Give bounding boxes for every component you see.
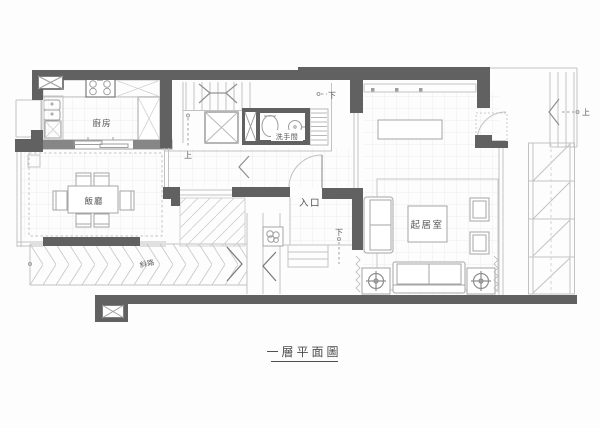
porch-down-marker: 下 [335, 228, 343, 237]
loveseat [364, 197, 393, 253]
entry-steps-outline [288, 245, 328, 267]
dining-south-wall [43, 237, 140, 246]
entry-wall-vertical [352, 199, 363, 250]
fringe-left [356, 256, 360, 292]
lamp-table-right [467, 268, 495, 294]
kitchen-label: 廚房 [92, 118, 111, 129]
entry-wall-horizontal [322, 188, 363, 199]
sofa [393, 262, 465, 293]
ramp-hatch [30, 244, 247, 285]
kitchen-east-wall [160, 80, 172, 148]
hall-floor-grid [168, 148, 352, 187]
elevator-shaft [205, 112, 238, 143]
plan-title: 一層平面圖 [266, 345, 341, 359]
exterior-stairs-right [490, 68, 579, 147]
exterior-up-marker: 上 [582, 108, 590, 117]
south-wall-mid [232, 187, 290, 197]
trellis-structure [528, 143, 575, 294]
title-block: 一層平面圖 [266, 345, 341, 362]
nw-column [38, 76, 63, 89]
south-boundary-wall [95, 295, 577, 304]
side-table-lower [470, 232, 489, 254]
west-pier-notch [31, 130, 43, 139]
stairs-up-marker: 上 [184, 151, 192, 160]
hall-south-pier-step [171, 199, 180, 206]
duct-panel [242, 108, 259, 145]
console-cabinet [378, 120, 442, 139]
hall-south-pier [163, 187, 180, 199]
terrace-threshold-a [475, 135, 492, 142]
understair-shelf [310, 93, 328, 146]
washroom-label: 洗手間 [276, 132, 299, 141]
garden-hatch-bed [180, 198, 245, 246]
west-pier [15, 139, 43, 152]
ramp-area [29, 244, 248, 285]
lamp-table-left [362, 268, 390, 294]
tall-cabinet [138, 97, 160, 140]
side-table-upper [470, 198, 489, 221]
stair-up-datum [187, 114, 190, 117]
trellis-diag-3 [533, 220, 570, 256]
top-wall-east [298, 67, 490, 80]
floor-plan-drawing: 廚房 飯廳 洗手間 入口 起居室 斜路 上 下 下 上 一層平面圖 [0, 0, 600, 428]
planting-bed [180, 198, 245, 246]
stair-chevron-right [199, 84, 210, 103]
plant-icon [263, 227, 283, 246]
terrace-threshold-b [475, 141, 508, 148]
down-datum [317, 93, 320, 96]
floor-plan-page: 廚房 飯廳 洗手間 入口 起居室 斜路 上 下 下 上 一層平面圖 [0, 0, 600, 428]
top-wall-west [32, 70, 298, 80]
hall-living-pier [350, 80, 363, 113]
living-label: 起居室 [410, 219, 443, 231]
exterior-landing [247, 213, 280, 294]
stair-chevron-left [226, 84, 237, 103]
sw-column [102, 305, 124, 318]
dining-label: 飯廳 [84, 196, 103, 207]
stairs-down-marker: 下 [328, 91, 336, 100]
landing-direction-chevron [263, 252, 276, 281]
ne-wall-leg [477, 80, 490, 108]
entrance-label: 入口 [299, 198, 321, 209]
living-window-sill [364, 84, 476, 92]
